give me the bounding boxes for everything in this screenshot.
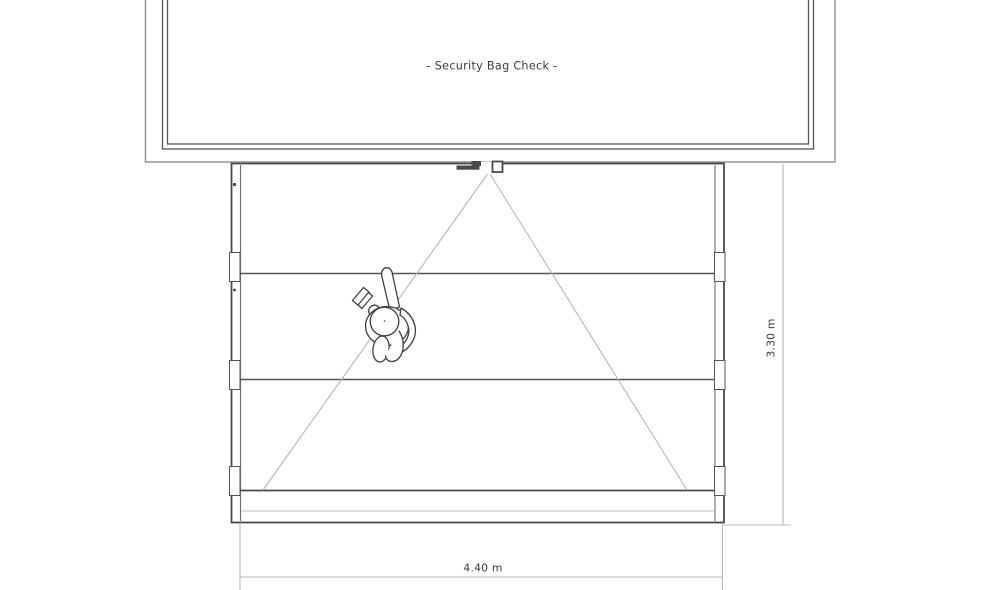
- connector-bracket: [715, 361, 726, 390]
- connector-dot: [233, 183, 236, 186]
- table-outline: [232, 164, 725, 523]
- width-dimension-label: 4.40 m: [463, 562, 502, 575]
- detection-cone: [263, 174, 687, 490]
- gate-arm-bar: [457, 166, 480, 170]
- floorplan-canvas: - Security Bag Check -: [0, 0, 992, 590]
- connector-bracket: [230, 467, 241, 496]
- bag-check-desk: - Security Bag Check -: [146, 0, 836, 162]
- security-bag-check-plan: - Security Bag Check -: [0, 0, 992, 590]
- cone-right-edge: [490, 174, 687, 490]
- connector-bracket: [715, 467, 726, 496]
- connector-bracket: [230, 361, 241, 390]
- gate-sensor-box: [493, 162, 503, 173]
- desk-outer-wall: [146, 0, 836, 162]
- height-dimension: 3.30 m: [724, 164, 792, 526]
- connector-dot: [233, 289, 236, 292]
- inspection-table: [230, 164, 726, 523]
- security-officer-figure: [353, 268, 416, 363]
- wall-connectors: [230, 183, 726, 496]
- width-dimension: 4.40 m: [240, 524, 723, 590]
- officer-head-mark: [384, 320, 386, 322]
- gate-arm-step: [472, 161, 482, 166]
- desk-inner-wall-outer-line: [163, 0, 814, 149]
- connector-bracket: [230, 253, 241, 282]
- area-label: - Security Bag Check -: [427, 60, 558, 73]
- height-dimension-label: 3.30 m: [765, 318, 778, 357]
- connector-bracket: [715, 253, 726, 282]
